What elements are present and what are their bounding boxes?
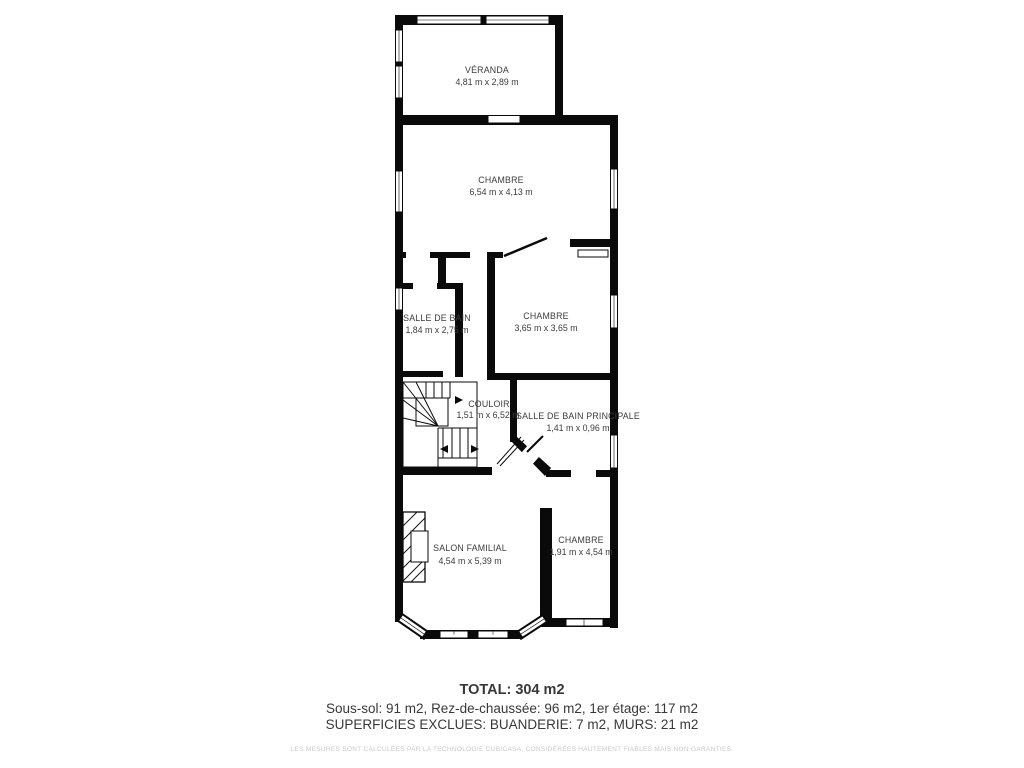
- room-dims: 1,51 m x 6,52 m: [456, 410, 519, 420]
- area-summary: TOTAL: 304 m2 Sous-sol: 91 m2, Rez-de-ch…: [0, 682, 1024, 733]
- room-name: SALLE DE BAIN: [403, 313, 471, 323]
- room-label-chambre-2: CHAMBRE 3,65 m x 3,65 m: [514, 311, 577, 333]
- floorplan-svg: VÉRANDA 4,81 m x 2,89 m CHAMBRE 6,54 m x…: [0, 0, 1024, 768]
- room-dims: 4,81 m x 2,89 m: [455, 77, 518, 87]
- levels-areas: Sous-sol: 91 m2, Rez-de-chaussée: 96 m2,…: [0, 701, 1024, 717]
- room-label-chambre-3: CHAMBRE 1,91 m x 4,54 m: [549, 535, 612, 557]
- doors-layer: [497, 238, 547, 466]
- room-label-salon-familial: SALON FAMILIAL 4,54 m x 5,39 m: [433, 543, 507, 566]
- room-dims: 1,41 m x 0,96 m: [546, 423, 609, 433]
- room-label-chambre-1: CHAMBRE 6,54 m x 4,13 m: [469, 175, 532, 197]
- total-area: TOTAL: 304 m2: [0, 682, 1024, 698]
- measurement-disclaimer: LES MESURES SONT CALCULÉES PAR LA TECHNO…: [0, 746, 1024, 753]
- room-name: SALON FAMILIAL: [433, 543, 507, 553]
- room-label-veranda: VÉRANDA 4,81 m x 2,89 m: [455, 65, 518, 87]
- room-label-salle-de-bain-principale: SALLE DE BAIN PRINCIPALE 1,41 m x 0,96 m: [516, 411, 640, 433]
- fireplace: [403, 512, 428, 582]
- room-name: CHAMBRE: [558, 535, 603, 545]
- room-name: COULOIR: [468, 399, 509, 409]
- excluded-areas: SUPERFICIES EXCLUES: BUANDERIE: 7 m2, MU…: [0, 717, 1024, 733]
- room-dims: 1,84 m x 2,75 m: [405, 325, 468, 335]
- floorplan-page: VÉRANDA 4,81 m x 2,89 m CHAMBRE 6,54 m x…: [0, 0, 1024, 768]
- room-dims: 1,91 m x 4,54 m: [549, 547, 612, 557]
- room-dims: 3,65 m x 3,65 m: [514, 323, 577, 333]
- staircase: [403, 382, 477, 467]
- room-dims: 6,54 m x 4,13 m: [469, 187, 532, 197]
- room-dims: 4,54 m x 5,39 m: [438, 556, 501, 566]
- room-name: CHAMBRE: [523, 311, 568, 321]
- room-name: CHAMBRE: [478, 175, 523, 185]
- room-name: SALLE DE BAIN PRINCIPALE: [516, 411, 640, 421]
- room-name: VÉRANDA: [465, 65, 509, 75]
